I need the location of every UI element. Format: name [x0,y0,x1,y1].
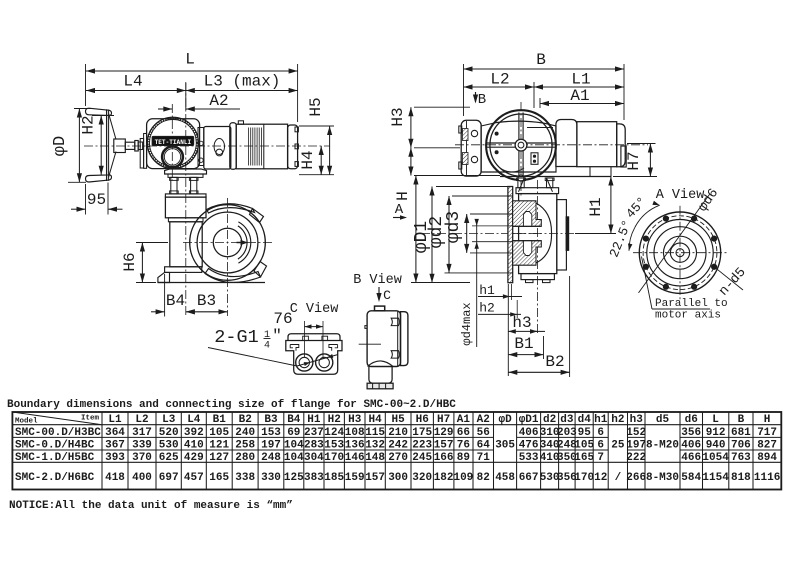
svg-text:Parallel to: Parallel to [655,298,728,310]
svg-text:146: 146 [345,452,365,464]
svg-text:95: 95 [87,191,106,209]
svg-text:H: H [394,191,412,201]
svg-text:": " [272,327,282,345]
svg-text:105: 105 [209,427,229,439]
svg-text:A: A [395,202,404,218]
svg-text:170: 170 [324,452,344,464]
svg-text:356: 356 [681,427,701,439]
svg-text:370: 370 [132,452,152,464]
svg-text:406: 406 [681,440,701,452]
svg-text:B3: B3 [264,414,278,426]
svg-text:L3 (max): L3 (max) [204,73,281,91]
svg-text:109: 109 [453,472,473,484]
svg-text:270: 270 [388,452,408,464]
svg-text:B3: B3 [197,292,216,310]
svg-text:L4: L4 [187,414,201,426]
svg-text:818: 818 [731,472,751,484]
svg-text:1116: 1116 [754,472,780,484]
svg-text:717: 717 [757,427,777,439]
svg-text:h2: h2 [611,414,624,426]
svg-text:223: 223 [412,440,432,452]
svg-text:d3: d3 [560,414,574,426]
svg-text:64: 64 [477,440,491,452]
svg-text:φD: φD [51,136,70,156]
svg-text:SMC-1.D/H5BC: SMC-1.D/H5BC [15,452,95,464]
svg-text:82: 82 [477,472,490,484]
svg-text:400: 400 [132,472,152,484]
svg-text:763: 763 [731,452,751,464]
svg-text:H7: H7 [625,151,643,170]
svg-text:317: 317 [132,427,152,439]
svg-text:H3: H3 [389,107,407,126]
svg-text:B4: B4 [287,414,301,426]
svg-text:25: 25 [611,440,625,452]
svg-text:h3: h3 [630,414,644,426]
svg-text:6: 6 [597,427,604,439]
svg-text:L3: L3 [162,414,176,426]
svg-text:153: 153 [324,440,344,452]
svg-text:458: 458 [495,472,515,484]
svg-text:8-M20: 8-M20 [646,440,679,452]
svg-text:136: 136 [345,440,365,452]
svg-text:B4: B4 [166,292,185,310]
svg-text:φD: φD [498,414,512,426]
svg-text:320: 320 [412,472,432,484]
svg-text:7: 7 [597,452,604,464]
svg-text:66: 66 [457,427,470,439]
svg-text:706: 706 [731,440,751,452]
svg-text:457: 457 [184,472,204,484]
svg-text:530: 530 [159,440,179,452]
svg-text:B1: B1 [213,414,227,426]
svg-text:222: 222 [626,452,646,464]
svg-text:392: 392 [184,427,204,439]
svg-text:L: L [185,51,195,69]
svg-text:697: 697 [159,472,179,484]
svg-text:φd4max: φd4max [460,302,474,345]
svg-text:304: 304 [304,452,324,464]
svg-text:330: 330 [261,472,281,484]
svg-text:71: 71 [477,452,491,464]
svg-text:H7: H7 [437,414,450,426]
svg-text:159: 159 [345,472,365,484]
svg-text:L1: L1 [108,414,122,426]
svg-text:393: 393 [105,452,125,464]
svg-text:197: 197 [261,440,281,452]
svg-text:8-M30: 8-M30 [646,472,679,484]
svg-text:338: 338 [235,472,255,484]
svg-text:104: 104 [284,452,304,464]
svg-text:H3: H3 [348,414,362,426]
svg-text:283: 283 [304,440,324,452]
svg-text:h1: h1 [594,414,608,426]
svg-text:245: 245 [412,452,432,464]
svg-text:h1: h1 [479,283,495,298]
svg-text:127: 127 [209,452,229,464]
svg-text:104: 104 [284,440,304,452]
svg-text:210: 210 [388,427,408,439]
svg-text:383: 383 [304,472,324,484]
svg-text:φd3: φd3 [444,211,464,243]
svg-text:B2: B2 [239,414,252,426]
svg-text:157: 157 [434,440,454,452]
svg-text:C View: C View [290,302,339,317]
svg-text:406: 406 [519,427,539,439]
svg-text:A2: A2 [477,414,490,426]
svg-text:SMC-00.D/H3BC: SMC-00.D/H3BC [15,427,101,439]
svg-text:203: 203 [557,427,577,439]
svg-text:266: 266 [626,472,646,484]
svg-text:305: 305 [495,440,515,452]
svg-text:1054: 1054 [702,452,729,464]
svg-text:Boundary dimensions and connec: Boundary dimensions and connecting size … [7,399,456,411]
svg-text:L2: L2 [490,71,509,89]
svg-text:940: 940 [706,440,726,452]
svg-text:d6: d6 [685,414,698,426]
svg-text:280: 280 [235,452,255,464]
svg-text:A1: A1 [457,414,471,426]
svg-text:364: 364 [105,427,125,439]
svg-text:584: 584 [681,472,701,484]
svg-text:56: 56 [477,427,490,439]
svg-text:894: 894 [757,452,777,464]
svg-text:h2: h2 [479,301,495,316]
svg-text:H5: H5 [391,414,405,426]
svg-text:H2: H2 [328,414,341,426]
svg-text:B: B [738,414,745,426]
svg-text:B: B [478,92,486,108]
svg-text:152: 152 [626,427,646,439]
svg-text:175: 175 [412,427,432,439]
svg-text:258: 258 [235,440,255,452]
svg-text:237: 237 [304,427,324,439]
svg-text:H: H [764,414,771,426]
svg-text:339: 339 [132,440,152,452]
svg-text:125: 125 [284,472,304,484]
svg-text:681: 681 [731,427,751,439]
svg-text:153: 153 [261,427,281,439]
svg-text:115: 115 [365,427,385,439]
svg-text:Item: Item [81,415,100,423]
svg-text:108: 108 [345,427,365,439]
svg-text:2-G1: 2-G1 [214,327,258,348]
svg-text:166: 166 [434,452,454,464]
svg-text:165: 165 [209,472,229,484]
svg-text:SMC-0.D/H4BC: SMC-0.D/H4BC [15,440,95,452]
svg-text:motor axis: motor axis [655,310,721,322]
svg-text:121: 121 [209,440,229,452]
svg-text:6: 6 [597,440,604,452]
svg-text:429: 429 [184,452,204,464]
svg-text:B: B [536,51,546,69]
svg-text:L4: L4 [123,73,142,91]
svg-text:d2: d2 [543,414,556,426]
svg-text:124: 124 [324,427,344,439]
svg-text:242: 242 [388,440,408,452]
svg-text:H5: H5 [307,97,325,116]
svg-text:157: 157 [365,472,385,484]
svg-text:418: 418 [105,472,125,484]
svg-text:76: 76 [457,440,470,452]
svg-text:SMC-2.D/H6BC: SMC-2.D/H6BC [15,472,95,484]
svg-text:A1: A1 [570,87,589,105]
svg-text:105: 105 [574,440,594,452]
svg-text:185: 185 [324,472,344,484]
svg-text:170: 170 [574,472,594,484]
svg-text:248: 248 [261,452,281,464]
svg-text:B View: B View [353,273,402,288]
svg-text:148: 148 [365,452,385,464]
svg-text:197: 197 [626,440,646,452]
svg-text:H4: H4 [368,414,382,426]
svg-text:B1: B1 [514,335,533,353]
svg-text:466: 466 [681,452,701,464]
svg-text:69: 69 [287,427,300,439]
svg-text:410: 410 [184,440,204,452]
svg-text:1: 1 [264,330,270,341]
svg-text:76: 76 [273,310,292,328]
svg-text:NOTICE:All the data unit of me: NOTICE:All the data unit of measure is “… [9,500,293,512]
svg-text:d4: d4 [578,414,592,426]
svg-text:476: 476 [519,440,539,452]
svg-text:B2: B2 [545,353,564,371]
svg-text:L2: L2 [135,414,148,426]
svg-text:1154: 1154 [702,472,729,484]
svg-text:φD1: φD1 [519,414,539,426]
svg-text:A2: A2 [209,92,228,110]
svg-text:d5: d5 [656,414,670,426]
svg-text:132: 132 [365,440,385,452]
svg-text:12: 12 [594,472,607,484]
svg-text:Model: Model [15,418,38,426]
svg-text:827: 827 [757,440,777,452]
svg-text:667: 667 [519,472,539,484]
svg-text:L: L [712,414,719,426]
svg-text:4: 4 [264,341,270,352]
svg-text:H1: H1 [587,197,605,216]
svg-text:367: 367 [105,440,125,452]
svg-text:912: 912 [706,427,726,439]
svg-text:240: 240 [235,427,255,439]
svg-text:H4: H4 [299,150,317,169]
svg-text:H6: H6 [121,252,139,271]
svg-text:H1: H1 [307,414,321,426]
svg-text:182: 182 [434,472,454,484]
svg-text:520: 520 [159,427,179,439]
svg-text:C: C [383,288,391,303]
svg-text:h3: h3 [512,314,531,332]
svg-text:300: 300 [388,472,408,484]
svg-text:533: 533 [519,452,539,464]
svg-text:165: 165 [574,452,594,464]
svg-text:L1: L1 [571,71,590,89]
svg-text:89: 89 [457,452,470,464]
svg-text:95: 95 [578,427,592,439]
svg-text:129: 129 [434,427,454,439]
svg-text:625: 625 [159,452,179,464]
svg-text:TET-TIANLI: TET-TIANLI [155,139,192,146]
svg-text:/: / [615,472,622,484]
svg-text:H6: H6 [416,414,429,426]
svg-text:A View: A View [656,188,705,203]
svg-text:H2: H2 [80,115,98,134]
